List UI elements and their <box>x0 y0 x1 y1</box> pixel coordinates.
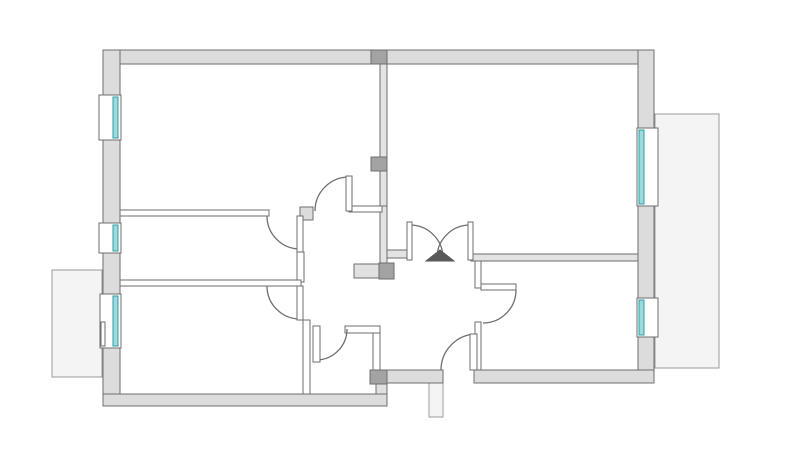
wall-room-ml-bottom <box>120 280 301 286</box>
wall-hall-top-right <box>349 206 382 212</box>
chimney-block-top <box>371 50 387 64</box>
entry-stub <box>429 383 443 417</box>
balcony-left <box>52 270 102 377</box>
balcony-right <box>655 114 719 368</box>
wall-hall-top-left <box>120 210 269 216</box>
window-left-balcony-leaf <box>101 322 105 346</box>
floor-plan-svg <box>0 0 800 455</box>
door-room-mid-left-swing-arc <box>267 216 300 249</box>
bottom-step-block <box>370 370 387 384</box>
bottom-step-bridge <box>376 384 387 394</box>
door-room-top-left-swing-arc <box>315 177 349 211</box>
wall-wc-right <box>373 333 380 370</box>
door-room-bottom-left-leaf <box>297 286 303 320</box>
door-room-top-left-leaf <box>346 176 352 211</box>
wall-wc-left <box>303 320 310 394</box>
window-left-balcony-glass <box>113 296 118 346</box>
partition-main-lower <box>380 206 387 264</box>
double-door-living-swing-triangle <box>426 250 454 261</box>
door-wc-swing-arc <box>317 329 347 360</box>
double-door-living-jamb-2 <box>468 222 473 260</box>
wall-bottom-band <box>387 370 443 383</box>
chimney-block-mid <box>371 157 387 171</box>
double-door-living-jamb-1 <box>407 222 412 260</box>
wall-doubledoor-right <box>471 254 638 261</box>
wall-wc-top <box>345 326 380 333</box>
wall-doubledoor-left <box>387 250 409 258</box>
shaft-block-light <box>354 264 379 278</box>
door-room-bottom-left-swing-arc <box>267 286 300 319</box>
window-right-bottom-glass <box>639 300 644 335</box>
wall-bottom-right <box>474 370 654 383</box>
door-room-bottom-right-leaf <box>481 284 516 290</box>
floor-plan-canvas <box>0 0 800 455</box>
door-entry-leaf <box>470 334 477 370</box>
door-room-bottom-right-swing-arc <box>483 290 516 323</box>
wall-room-br-left-upper <box>475 261 481 288</box>
door-wc-leaf <box>313 326 320 362</box>
partition-main-upper <box>380 64 387 213</box>
shaft-block-dark <box>379 263 394 279</box>
window-right-top-glass <box>639 130 644 204</box>
wall-hall-mid-post <box>297 252 304 282</box>
wall-bottom-left <box>103 394 387 406</box>
window-left-middle-glass <box>113 225 118 251</box>
window-left-top-glass <box>113 97 118 138</box>
door-room-mid-left-leaf <box>297 216 303 252</box>
